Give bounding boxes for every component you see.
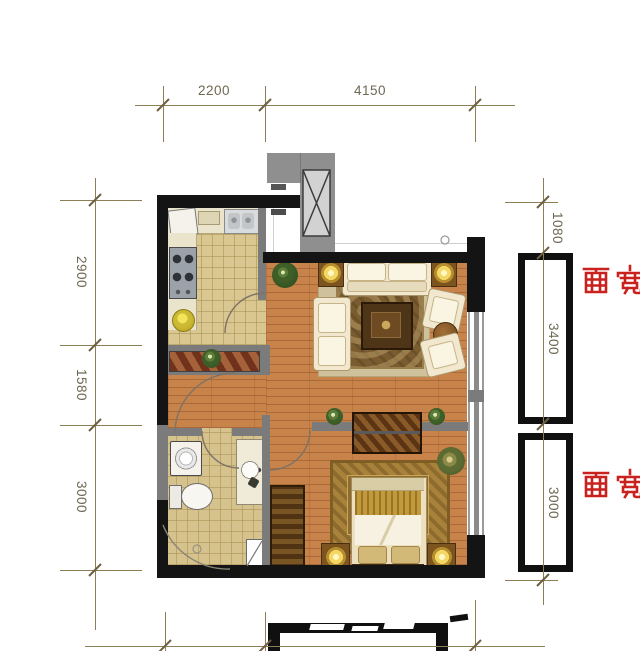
stove-icon [169, 247, 197, 299]
dim-bay-1: 3400 [546, 309, 560, 369]
bed-icon [351, 477, 427, 570]
extension-line [165, 612, 166, 651]
window-sill-line [335, 243, 467, 244]
dim-top-2: 4150 [330, 84, 410, 98]
plant-icon [326, 408, 343, 425]
side-table-lamp-icon [318, 259, 344, 287]
dim-bay-2: 3000 [546, 473, 560, 533]
bay-width-label [584, 470, 640, 497]
shower-glass-icon [246, 539, 263, 568]
extension-line [60, 570, 142, 571]
dim-left-1: 2900 [74, 244, 88, 300]
kitchen-sink-icon [224, 209, 259, 234]
wall-top-kitchen [157, 195, 300, 208]
wardrobe-icon [270, 485, 305, 571]
extension-line [505, 580, 558, 581]
extension-line [475, 600, 476, 651]
extension-line [60, 345, 142, 346]
floor-plan-canvas: 2200 4150 2900 1580 3000 1080 3400 3000 [0, 0, 640, 651]
watermark-fragment [383, 623, 415, 629]
sofa-icon [342, 258, 432, 296]
extension-line [505, 202, 558, 203]
dim-left-2: 1580 [74, 357, 88, 413]
dimension-line-right [543, 178, 544, 605]
watermark-fragment [351, 626, 378, 631]
wall-left [157, 195, 168, 565]
shaft-divider [300, 153, 301, 183]
tv-cabinet-icon [352, 412, 422, 454]
extension-line [265, 612, 266, 651]
window-pier [468, 390, 484, 402]
side-table-lamp-icon [431, 259, 457, 287]
extension-line [60, 425, 142, 426]
plant-icon [272, 262, 298, 288]
chaise-sofa-icon [313, 297, 351, 371]
dim-top-1: 2200 [174, 84, 254, 98]
plant-icon [437, 447, 465, 475]
vanity-icon [236, 439, 264, 505]
extension-line [265, 86, 266, 142]
washing-machine-icon [170, 441, 202, 476]
bathroom-wall [262, 415, 270, 568]
toilet-bowl-icon [181, 483, 213, 510]
extension-line [60, 200, 142, 201]
hallway-floor [168, 375, 266, 428]
pillow-icon [358, 546, 387, 564]
window-icon [468, 402, 484, 535]
door-hardware-icon [271, 184, 286, 190]
plant-icon [202, 349, 221, 368]
watermark-fragment [450, 614, 469, 622]
watermark-fragment [309, 624, 345, 630]
dim-right-top: 1080 [550, 208, 564, 248]
wall-bottom [157, 565, 485, 578]
plant-icon [428, 408, 445, 425]
wall-top-living [263, 252, 467, 263]
dimension-line-top [135, 105, 515, 106]
coffee-table-icon [361, 302, 413, 350]
extension-line [475, 86, 476, 142]
extension-line [163, 86, 164, 142]
dimension-line-bottom [85, 646, 545, 647]
dim-left-3: 3000 [74, 469, 88, 525]
dimension-line-left [95, 178, 96, 630]
window-icon [468, 312, 484, 390]
bowl-icon [172, 309, 195, 332]
door-hardware-icon [271, 209, 286, 215]
wall-left-bathroom-face [157, 425, 168, 500]
wall-right-upper [467, 237, 485, 312]
cutting-board-icon [198, 211, 220, 225]
pillow-icon [391, 546, 420, 564]
bay-width-label [584, 266, 640, 293]
